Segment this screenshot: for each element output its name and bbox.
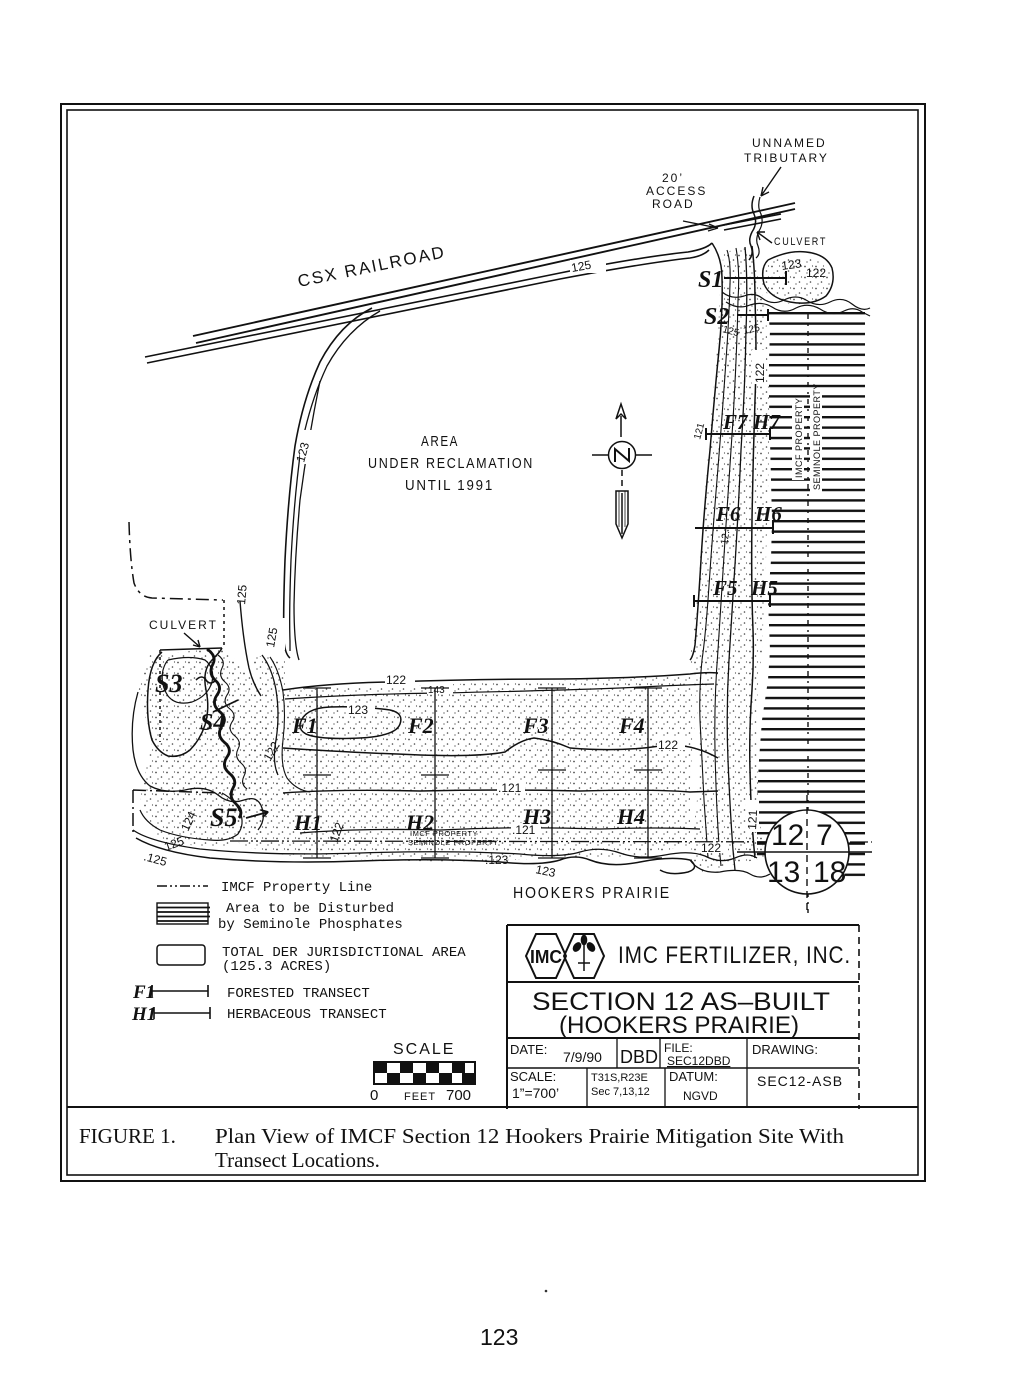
svg-text:F7: F7 — [722, 410, 749, 434]
svg-text:H3: H3 — [522, 804, 551, 829]
svg-text:NGVD: NGVD — [683, 1089, 718, 1103]
svg-text:DRAWING:: DRAWING: — [752, 1042, 818, 1057]
svg-text:122: 122 — [658, 738, 678, 752]
svg-text:FORESTED TRANSECT: FORESTED TRANSECT — [227, 986, 370, 1002]
svg-text:Transect Locations.: Transect Locations. — [215, 1148, 380, 1172]
svg-text:S4: S4 — [200, 710, 225, 736]
svg-text:S1: S1 — [698, 267, 723, 293]
svg-text:F1: F1 — [291, 713, 318, 738]
svg-text:S5: S5 — [210, 803, 237, 832]
svg-text:122: 122 — [386, 673, 406, 687]
svg-text:.121: .121 — [498, 781, 522, 795]
svg-text:AREA: AREA — [421, 433, 459, 450]
svg-text:Area to be Disturbed: Area to be Disturbed — [226, 901, 394, 917]
svg-text:T31S,R23E: T31S,R23E — [591, 1072, 648, 1084]
svg-text:HERBACEOUS TRANSECT: HERBACEOUS TRANSECT — [227, 1007, 387, 1023]
svg-text:SEMINOLE PROPERTY: SEMINOLE PROPERTY — [812, 383, 822, 490]
svg-text:7: 7 — [816, 819, 833, 852]
svg-text:F6: F6 — [715, 502, 741, 526]
svg-text:122: 122 — [701, 841, 721, 855]
svg-text:H6: H6 — [754, 502, 782, 526]
svg-text:18: 18 — [813, 856, 846, 889]
svg-text:ACCESS: ACCESS — [646, 184, 707, 198]
svg-text:ROAD: ROAD — [652, 197, 695, 211]
svg-text:SEC12-ASB: SEC12-ASB — [757, 1073, 843, 1089]
svg-text:12: 12 — [771, 819, 804, 852]
svg-text:0: 0 — [370, 1087, 378, 1104]
svg-text:122: 122 — [753, 363, 767, 383]
svg-text:.123: .123 — [485, 853, 509, 867]
svg-text:IMC: IMC — [530, 947, 562, 967]
svg-text:FIGURE 1.: FIGURE 1. — [79, 1124, 176, 1148]
svg-text:H5: H5 — [750, 576, 778, 600]
svg-text:123: 123 — [780, 256, 802, 273]
svg-text:UNTIL 1991: UNTIL 1991 — [405, 477, 494, 494]
svg-text:SCALE:: SCALE: — [510, 1069, 556, 1084]
svg-text:TRIBUTARY: TRIBUTARY — [744, 151, 829, 165]
svg-text:SEMINOLE PROPERTY: SEMINOLE PROPERTY — [408, 838, 498, 847]
svg-text:DATE:: DATE: — [510, 1042, 547, 1057]
svg-text:700: 700 — [446, 1087, 471, 1104]
svg-text:F3: F3 — [522, 713, 549, 738]
svg-text:SEC12DBD: SEC12DBD — [667, 1054, 731, 1068]
svg-text:H4: H4 — [616, 804, 645, 829]
svg-text:FILE:: FILE: — [664, 1041, 693, 1055]
svg-text:H1: H1 — [293, 810, 322, 835]
svg-text:122: 122 — [806, 266, 826, 280]
svg-text:S3: S3 — [155, 669, 182, 698]
svg-text:DATUM:: DATUM: — [669, 1069, 718, 1084]
svg-text:Plan View of IMCF Section 12 H: Plan View of IMCF Section 12 Hookers Pra… — [215, 1124, 845, 1148]
svg-text:(HOOKERS PRAIRIE): (HOOKERS PRAIRIE) — [559, 1012, 799, 1039]
svg-text:H7: H7 — [752, 410, 781, 434]
svg-text:CULVERT: CULVERT — [149, 618, 218, 632]
svg-text:IMC FERTILIZER, INC.: IMC FERTILIZER, INC. — [618, 942, 851, 969]
svg-text:CULVERT: CULVERT — [774, 236, 827, 248]
svg-text:F5: F5 — [712, 576, 738, 600]
svg-text:UNNAMED: UNNAMED — [752, 136, 827, 150]
svg-text:UNDER RECLAMATION: UNDER RECLAMATION — [368, 455, 534, 472]
svg-text:125: 125 — [234, 584, 250, 605]
svg-text:Sec 7,13,12: Sec 7,13,12 — [591, 1086, 650, 1098]
svg-text:F2: F2 — [407, 713, 434, 738]
svg-text:H1: H1 — [131, 1004, 156, 1025]
svg-text:(125.3 ACRES): (125.3 ACRES) — [222, 959, 331, 975]
svg-text:SCALE: SCALE — [393, 1041, 455, 1058]
svg-text:7/9/90: 7/9/90 — [563, 1049, 602, 1065]
svg-text:143: 143 — [428, 685, 445, 696]
svg-text:1”=700’: 1”=700’ — [512, 1085, 559, 1101]
svg-text:123: 123 — [348, 703, 368, 717]
svg-text:121: 121 — [745, 809, 760, 830]
svg-text:H2: H2 — [405, 810, 434, 835]
svg-text:IMCF PROPERTY: IMCF PROPERTY — [794, 398, 804, 478]
svg-text:DBD: DBD — [620, 1047, 658, 1067]
svg-text:HOOKERS PRAIRIE: HOOKERS PRAIRIE — [513, 885, 671, 902]
svg-text:F1: F1 — [132, 982, 155, 1003]
svg-text:FEET: FEET — [404, 1091, 436, 1103]
svg-text:by Seminole Phosphates: by Seminole Phosphates — [218, 917, 403, 933]
svg-text:F4: F4 — [618, 713, 645, 738]
svg-text:13: 13 — [767, 856, 800, 889]
svg-text:123: 123 — [480, 1324, 518, 1350]
svg-text:IMCF Property Line: IMCF Property Line — [221, 880, 372, 896]
svg-text:20’: 20’ — [662, 171, 684, 185]
